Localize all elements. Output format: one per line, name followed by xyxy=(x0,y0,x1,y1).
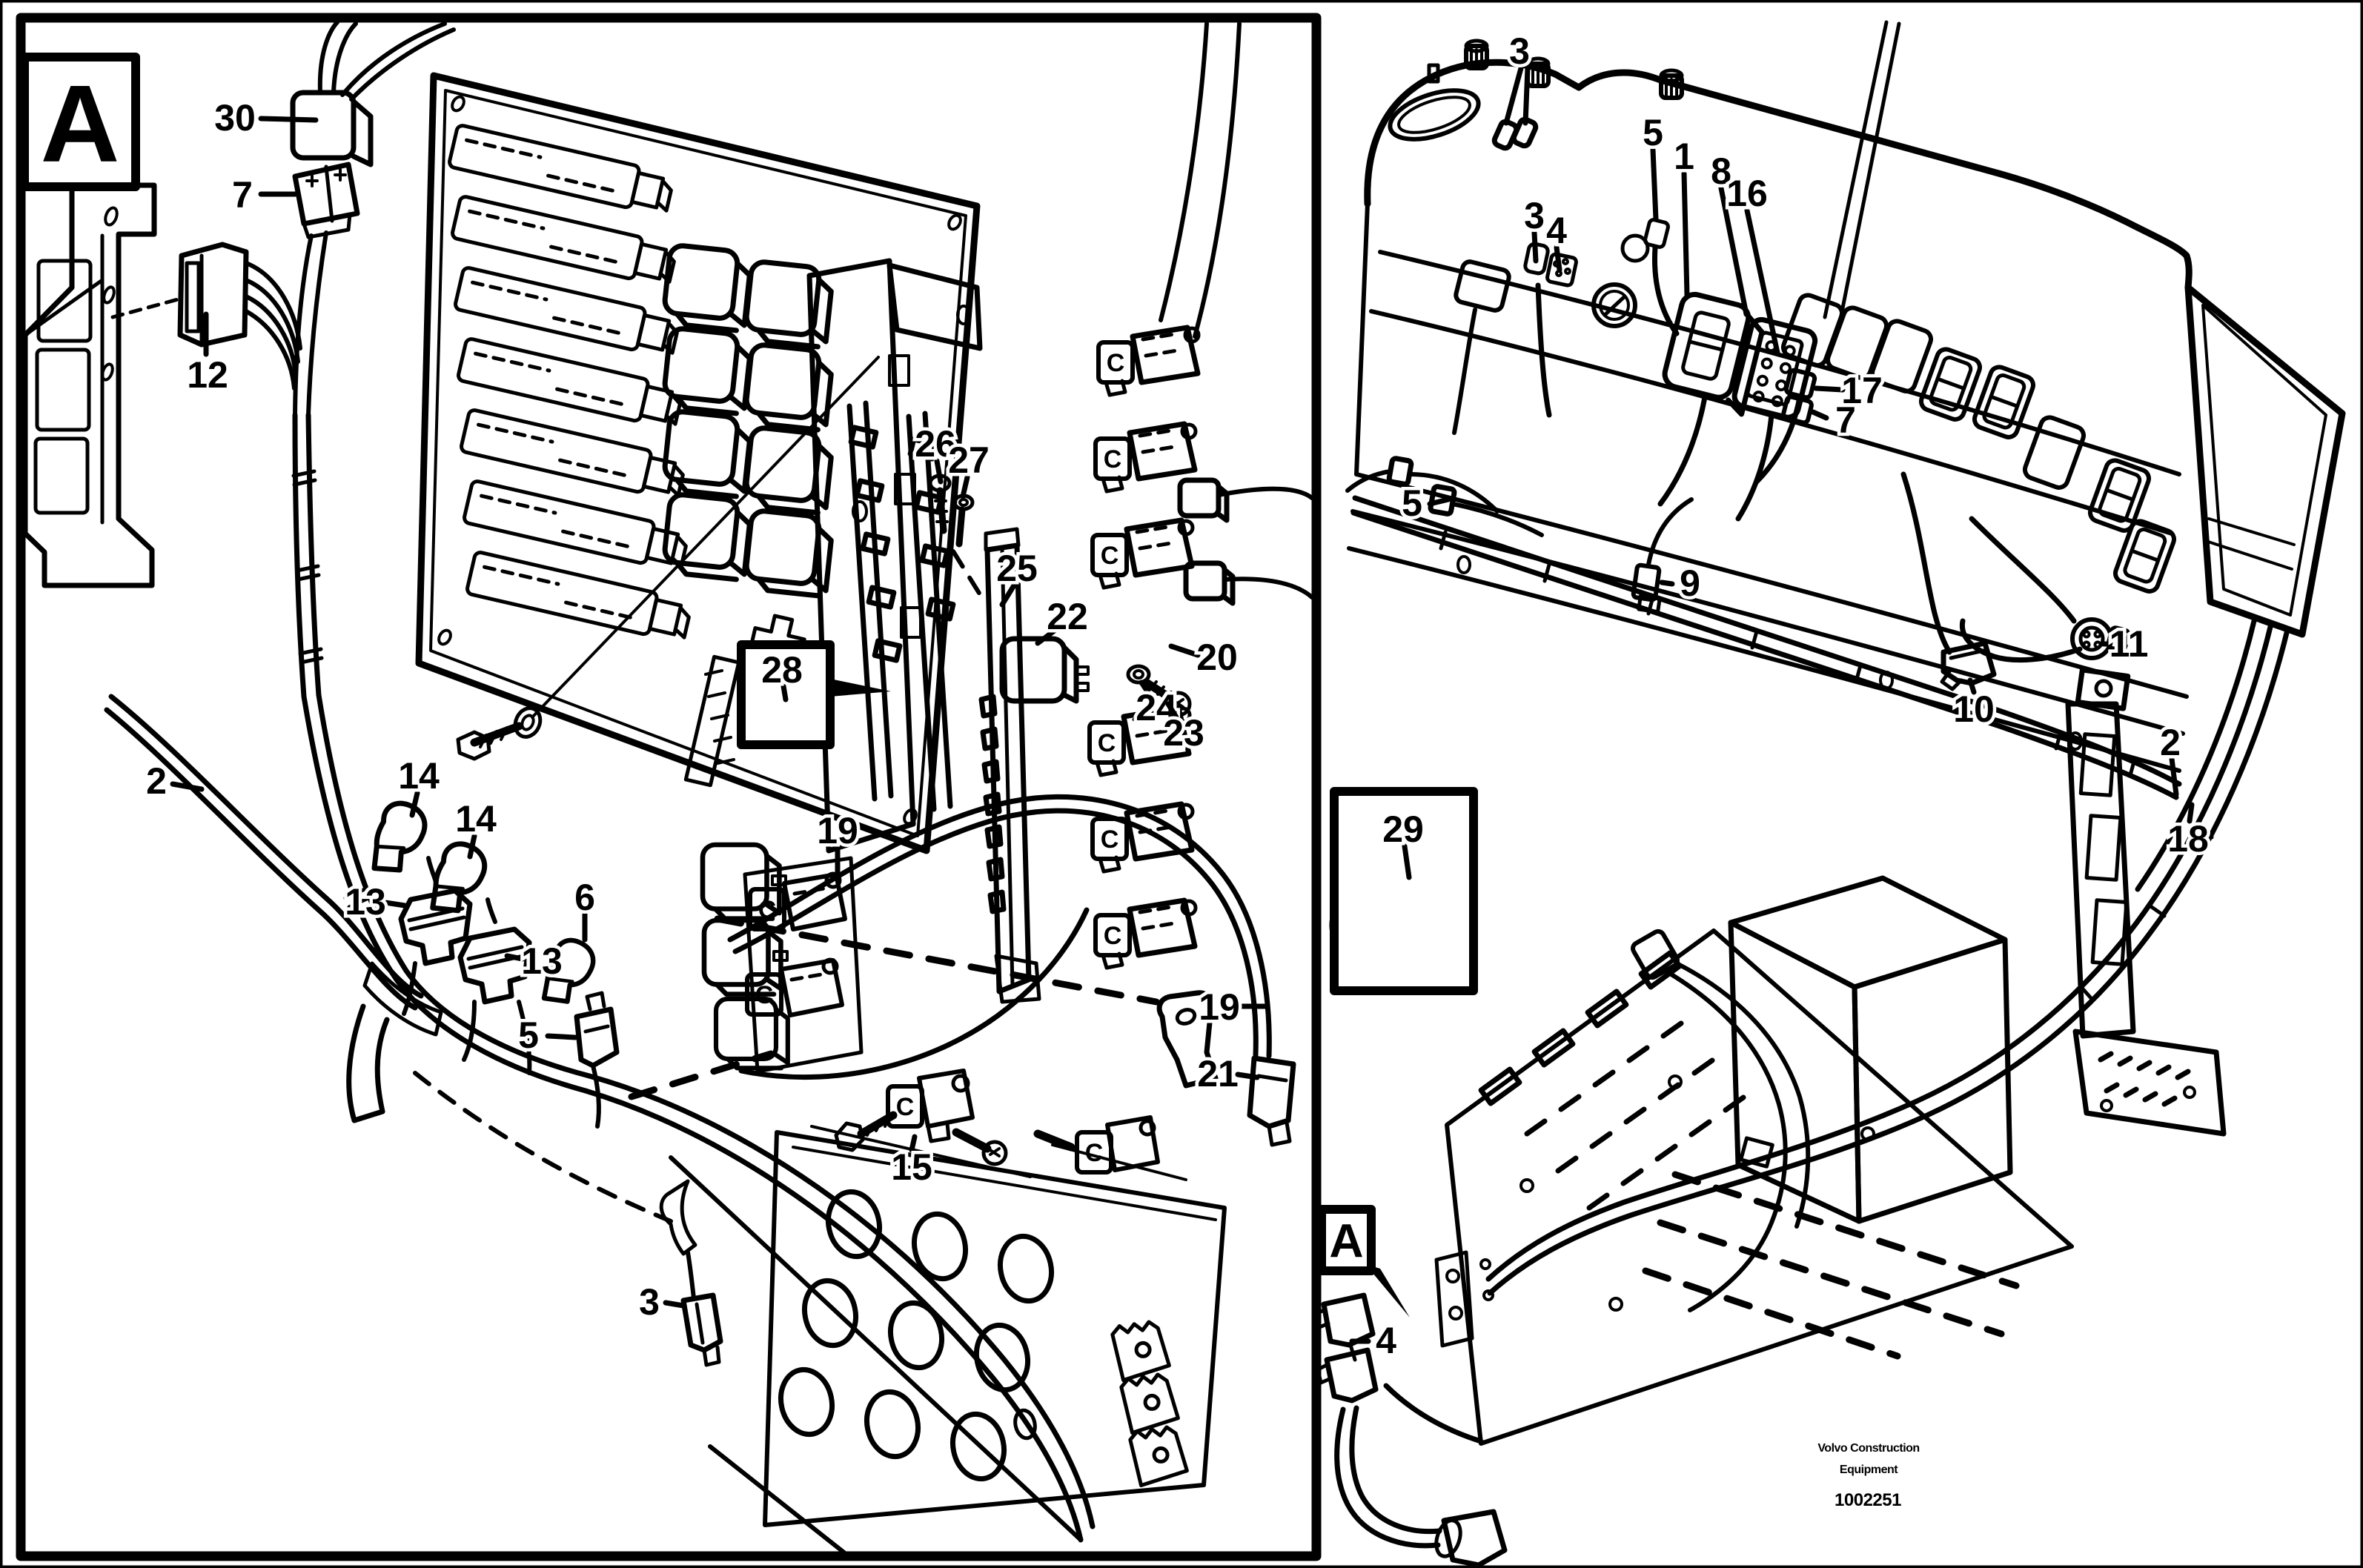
callout-label-19: 19 xyxy=(817,810,858,851)
panel-relay xyxy=(1454,260,1511,433)
callout-label-23: 23 xyxy=(1163,712,1204,754)
callout-leader-13 xyxy=(385,903,405,906)
connector-cluster xyxy=(370,800,617,1126)
callout-leader-30 xyxy=(261,119,316,120)
callout-label-13: 13 xyxy=(521,940,563,982)
callout-label-21: 21 xyxy=(1197,1053,1239,1094)
callout-leader-3 xyxy=(666,1303,683,1306)
callout-label-4: 4 xyxy=(1376,1320,1396,1361)
callout-leader-2 xyxy=(2172,759,2176,794)
t-connector-13b xyxy=(460,929,529,1002)
callout-label-2: 2 xyxy=(2160,722,2181,763)
connector-5-left xyxy=(577,993,617,1066)
fuse-c-mark: C xyxy=(1107,349,1125,377)
callout-leader-20 xyxy=(1171,646,1198,655)
callout-label-3: 3 xyxy=(1524,195,1545,236)
relay-22 xyxy=(1002,639,1088,701)
callouts-layer: 3071221414131365262725222820242319192115… xyxy=(146,30,2209,1361)
callout-leader-17 xyxy=(1816,388,1843,390)
panel-right-wing xyxy=(2188,288,2342,634)
connectors-4-stack xyxy=(1315,1295,1505,1565)
callout-label-4: 4 xyxy=(1546,210,1567,251)
parts-diagram-canvas: Volvo Construction Equipment 1002251 AA … xyxy=(0,0,2363,1568)
perforated-panel xyxy=(765,1132,1224,1525)
wires-10-11 xyxy=(1903,474,2080,660)
fuse-c-mark: C xyxy=(1104,445,1122,474)
wall-bracket xyxy=(25,185,178,585)
fuse-c-mark: C xyxy=(1104,922,1122,950)
cap-connectors-3-top xyxy=(1493,118,1537,150)
detail-markers-layer: AA xyxy=(24,57,1371,1271)
fuse-c-mark: C xyxy=(1101,825,1119,854)
callout-leader-1 xyxy=(1684,173,1687,295)
callout-label-18: 18 xyxy=(2167,818,2209,860)
callout-label-5: 5 xyxy=(518,1014,539,1056)
callout-label-9: 9 xyxy=(1680,562,1700,604)
fuse-c-mark: C xyxy=(896,1093,915,1121)
connector-17 xyxy=(1786,369,1816,398)
callout-label-19: 19 xyxy=(1199,986,1240,1028)
callout-label-5: 5 xyxy=(1643,112,1663,153)
fuse-c-mark: C xyxy=(758,896,777,924)
detail-marker-letter: A xyxy=(41,63,120,185)
callout-leader-3 xyxy=(1506,68,1521,123)
callout-leader-3 xyxy=(1525,68,1528,123)
connector-3-left xyxy=(415,1073,720,1365)
callout-label-7: 7 xyxy=(1835,399,1856,441)
callout-leader-21 xyxy=(1238,1074,1257,1077)
callout-label-13: 13 xyxy=(345,881,386,923)
callout-leader-5 xyxy=(548,1036,575,1037)
boot-connector-14a xyxy=(370,800,429,878)
panel-edge-line-2 xyxy=(710,1446,849,1556)
left-panel xyxy=(21,18,1316,1556)
callout-label-12: 12 xyxy=(187,354,228,396)
fuse-feed-wire-1 xyxy=(1161,24,1207,320)
callout-label-5: 5 xyxy=(1402,482,1422,524)
connector-10 xyxy=(1942,643,1994,689)
callout-label-20: 20 xyxy=(1196,637,1238,678)
figure-number: 1002251 xyxy=(1835,1490,1901,1510)
callout-label-15: 15 xyxy=(891,1146,932,1188)
brand-line-2: Equipment xyxy=(1840,1464,1898,1476)
callout-label-14: 14 xyxy=(398,755,440,797)
callout-leader-9 xyxy=(1662,582,1672,584)
callout-leader-5 xyxy=(1653,150,1656,219)
cap-connector-5a xyxy=(1644,219,1668,248)
callout-leader-7 xyxy=(1813,412,1826,418)
connectors-20 xyxy=(1180,480,1312,603)
boot-connector-14b xyxy=(428,840,490,919)
circuit-board xyxy=(1436,929,2072,1444)
callout-label-6: 6 xyxy=(574,877,595,918)
detail-marker-letter: A xyxy=(1329,1215,1363,1268)
callout-label-30: 30 xyxy=(214,97,256,139)
washer-screw-27 xyxy=(955,496,972,544)
callout-label-22: 22 xyxy=(1047,596,1088,637)
fuse-c-mark: C xyxy=(1098,729,1116,757)
diagram-page: Volvo Construction Equipment 1002251 AA … xyxy=(0,0,2363,1568)
harness-curve-right xyxy=(1488,618,2287,1293)
connector-21 xyxy=(1250,1058,1293,1145)
callout-leader-2 xyxy=(173,784,202,789)
callout-label-28: 28 xyxy=(761,649,803,691)
callout-label-3: 3 xyxy=(639,1281,660,1323)
fuse-c-mark: C xyxy=(1101,542,1119,570)
callout-label-25: 25 xyxy=(996,548,1038,589)
callout-leader-13 xyxy=(507,956,523,959)
callout-label-3: 3 xyxy=(1509,30,1530,72)
callout-label-11: 11 xyxy=(2110,623,2149,665)
callout-label-14: 14 xyxy=(455,798,497,840)
screw-dash-lead xyxy=(953,551,980,594)
callout-leader-3 xyxy=(1534,233,1536,261)
ladder-bracket xyxy=(2068,670,2224,1134)
callout-label-10: 10 xyxy=(1953,688,1995,730)
fuse-c-mark: C xyxy=(1085,1139,1104,1167)
callout-label-7: 7 xyxy=(232,174,253,216)
callout-label-1: 1 xyxy=(1674,136,1694,177)
callout-label-29: 29 xyxy=(1382,808,1424,850)
fuse-c-mark: C xyxy=(755,981,774,1009)
connector-7-left xyxy=(295,165,357,415)
callout-label-27: 27 xyxy=(948,439,990,481)
panel-harness-bundle xyxy=(1353,248,2179,797)
brand-line-1: Volvo Construction xyxy=(1817,1442,1919,1455)
callout-label-16: 16 xyxy=(1726,173,1768,214)
callout-label-2: 2 xyxy=(146,760,167,802)
title-block: Volvo Construction Equipment 1002251 xyxy=(1817,1442,1919,1510)
